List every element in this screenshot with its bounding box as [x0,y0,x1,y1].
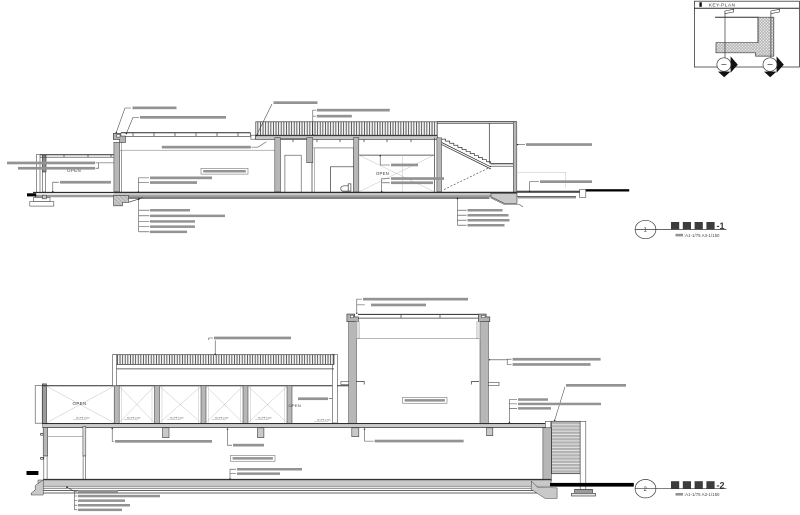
svg-text:OPEN: OPEN [376,171,389,176]
svg-text:SLOPE 1/100: SLOPE 1/100 [127,417,141,419]
svg-text:SLOPE 1/100: SLOPE 1/100 [317,420,331,422]
svg-text:KEY-PLAN: KEY-PLAN [709,3,736,9]
svg-text:SLOPE 1/100: SLOPE 1/100 [170,417,184,419]
svg-text:-2: -2 [717,480,725,490]
svg-text:-1: -1 [717,221,725,231]
svg-text::A1-1/75 A3-1/150: :A1-1/75 A3-1/150 [684,492,720,497]
svg-text:SLOPE 1/100: SLOPE 1/100 [215,417,229,419]
svg-text:OPEN: OPEN [289,403,302,408]
svg-text::A1-1/75 A3-1/150: :A1-1/75 A3-1/150 [684,233,720,238]
svg-text:SLOPE 1/100: SLOPE 1/100 [258,417,272,419]
svg-text:SLOPE 1/100: SLOPE 1/100 [76,417,90,419]
svg-text:OPEN: OPEN [73,401,87,406]
